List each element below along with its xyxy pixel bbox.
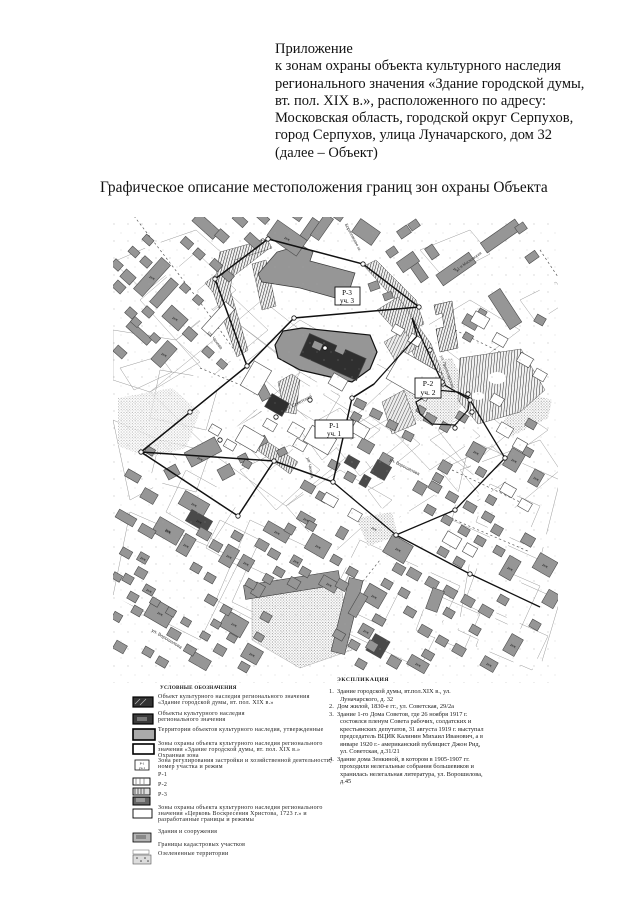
- svg-text:уч. 3: уч. 3: [340, 297, 355, 305]
- svg-text:уч. 1: уч. 1: [327, 430, 342, 438]
- svg-text:Р-3: Р-3: [342, 289, 352, 297]
- svg-text:Р-2: Р-2: [423, 379, 434, 388]
- svg-text:Р-1: Р-1: [140, 762, 145, 766]
- svg-text:уч.1: уч.1: [139, 766, 145, 770]
- svg-text:уч. 2: уч. 2: [420, 388, 435, 397]
- svg-text:Р-1: Р-1: [329, 422, 339, 430]
